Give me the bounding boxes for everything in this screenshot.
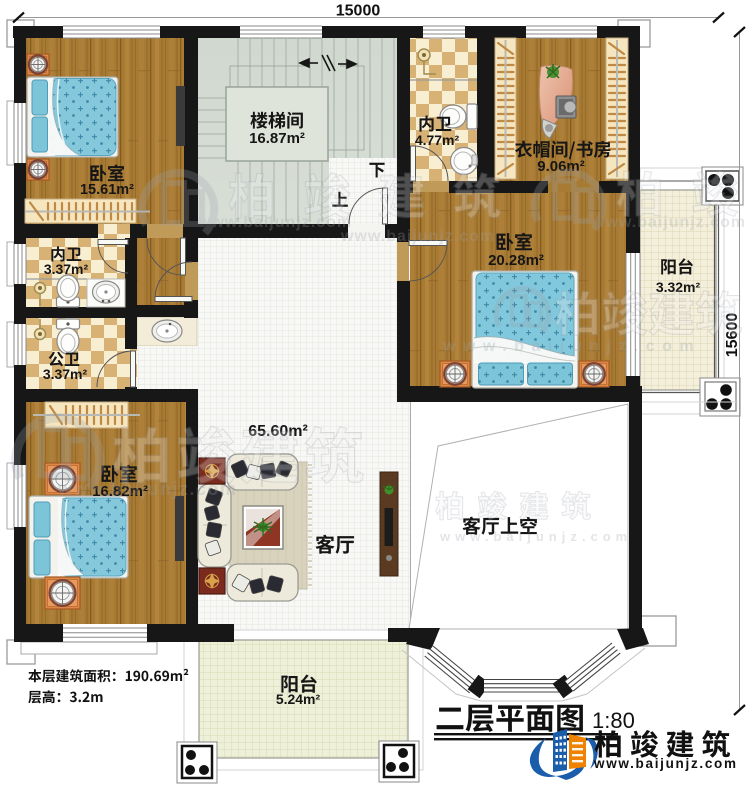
svg-text:www.baijunjz.com: www.baijunjz.com [442, 338, 701, 355]
svg-text:3.37m²: 3.37m² [44, 261, 89, 277]
svg-text:3.37m²: 3.37m² [43, 366, 88, 382]
svg-text:www.baijunjz.com: www.baijunjz.com [340, 228, 495, 245]
svg-text:www.baijunjz.com: www.baijunjz.com [593, 756, 738, 771]
svg-text:www.baijunjz.com: www.baijunjz.com [57, 479, 237, 499]
svg-text:16.87m²: 16.87m² [249, 130, 305, 147]
svg-text:www.baijunjz.com: www.baijunjz.com [197, 214, 352, 231]
svg-text:4.77m²: 4.77m² [415, 132, 460, 148]
svg-text:www.baijunjz.com: www.baijunjz.com [439, 529, 632, 544]
svg-text:15.61m²: 15.61m² [80, 182, 134, 198]
svg-text:1:80: 1:80 [592, 708, 635, 733]
svg-text:20.28m²: 20.28m² [488, 252, 544, 269]
svg-text:www.baijunjz.com: www.baijunjz.com [591, 214, 746, 231]
svg-text:5.24m²: 5.24m² [276, 691, 321, 707]
svg-text:15000: 15000 [336, 3, 381, 20]
